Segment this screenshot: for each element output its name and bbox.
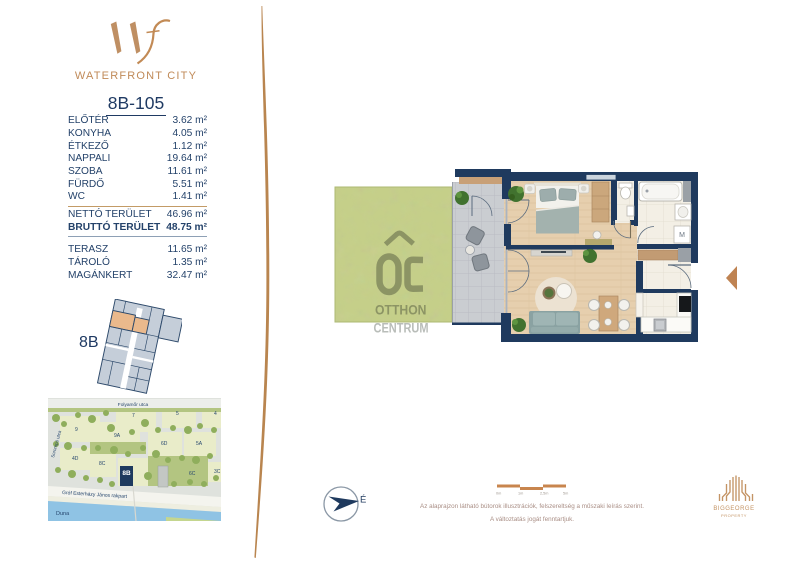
- svg-text:Folyamőr utca: Folyamőr utca: [118, 402, 149, 408]
- svg-text:3C: 3C: [214, 469, 221, 475]
- svg-text:Duna: Duna: [56, 511, 70, 517]
- svg-text:5A: 5A: [196, 441, 203, 447]
- svg-text:BIGGEORGE: BIGGEORGE: [713, 506, 754, 512]
- svg-text:4D: 4D: [72, 456, 79, 462]
- svg-text:8B: 8B: [122, 470, 131, 477]
- svg-text:4: 4: [214, 411, 217, 417]
- svg-text:2,5m: 2,5m: [540, 492, 548, 496]
- svg-text:6C: 6C: [189, 471, 196, 477]
- svg-text:É: É: [360, 495, 366, 506]
- svg-text:7: 7: [132, 413, 135, 419]
- svg-text:OTTHON: OTTHON: [375, 303, 427, 318]
- svg-text:PROPERTY: PROPERTY: [721, 513, 747, 518]
- svg-text:8C: 8C: [99, 461, 106, 467]
- svg-text:9: 9: [75, 427, 78, 433]
- svg-text:9A: 9A: [114, 433, 121, 439]
- svg-text:5: 5: [176, 411, 179, 417]
- svg-text:0m: 0m: [496, 492, 501, 496]
- svg-text:CENTRUM: CENTRUM: [374, 321, 429, 336]
- svg-text:1m: 1m: [518, 492, 523, 496]
- svg-text:6D: 6D: [161, 441, 168, 447]
- svg-text:5m: 5m: [563, 492, 568, 496]
- svg-text:M: M: [679, 232, 685, 239]
